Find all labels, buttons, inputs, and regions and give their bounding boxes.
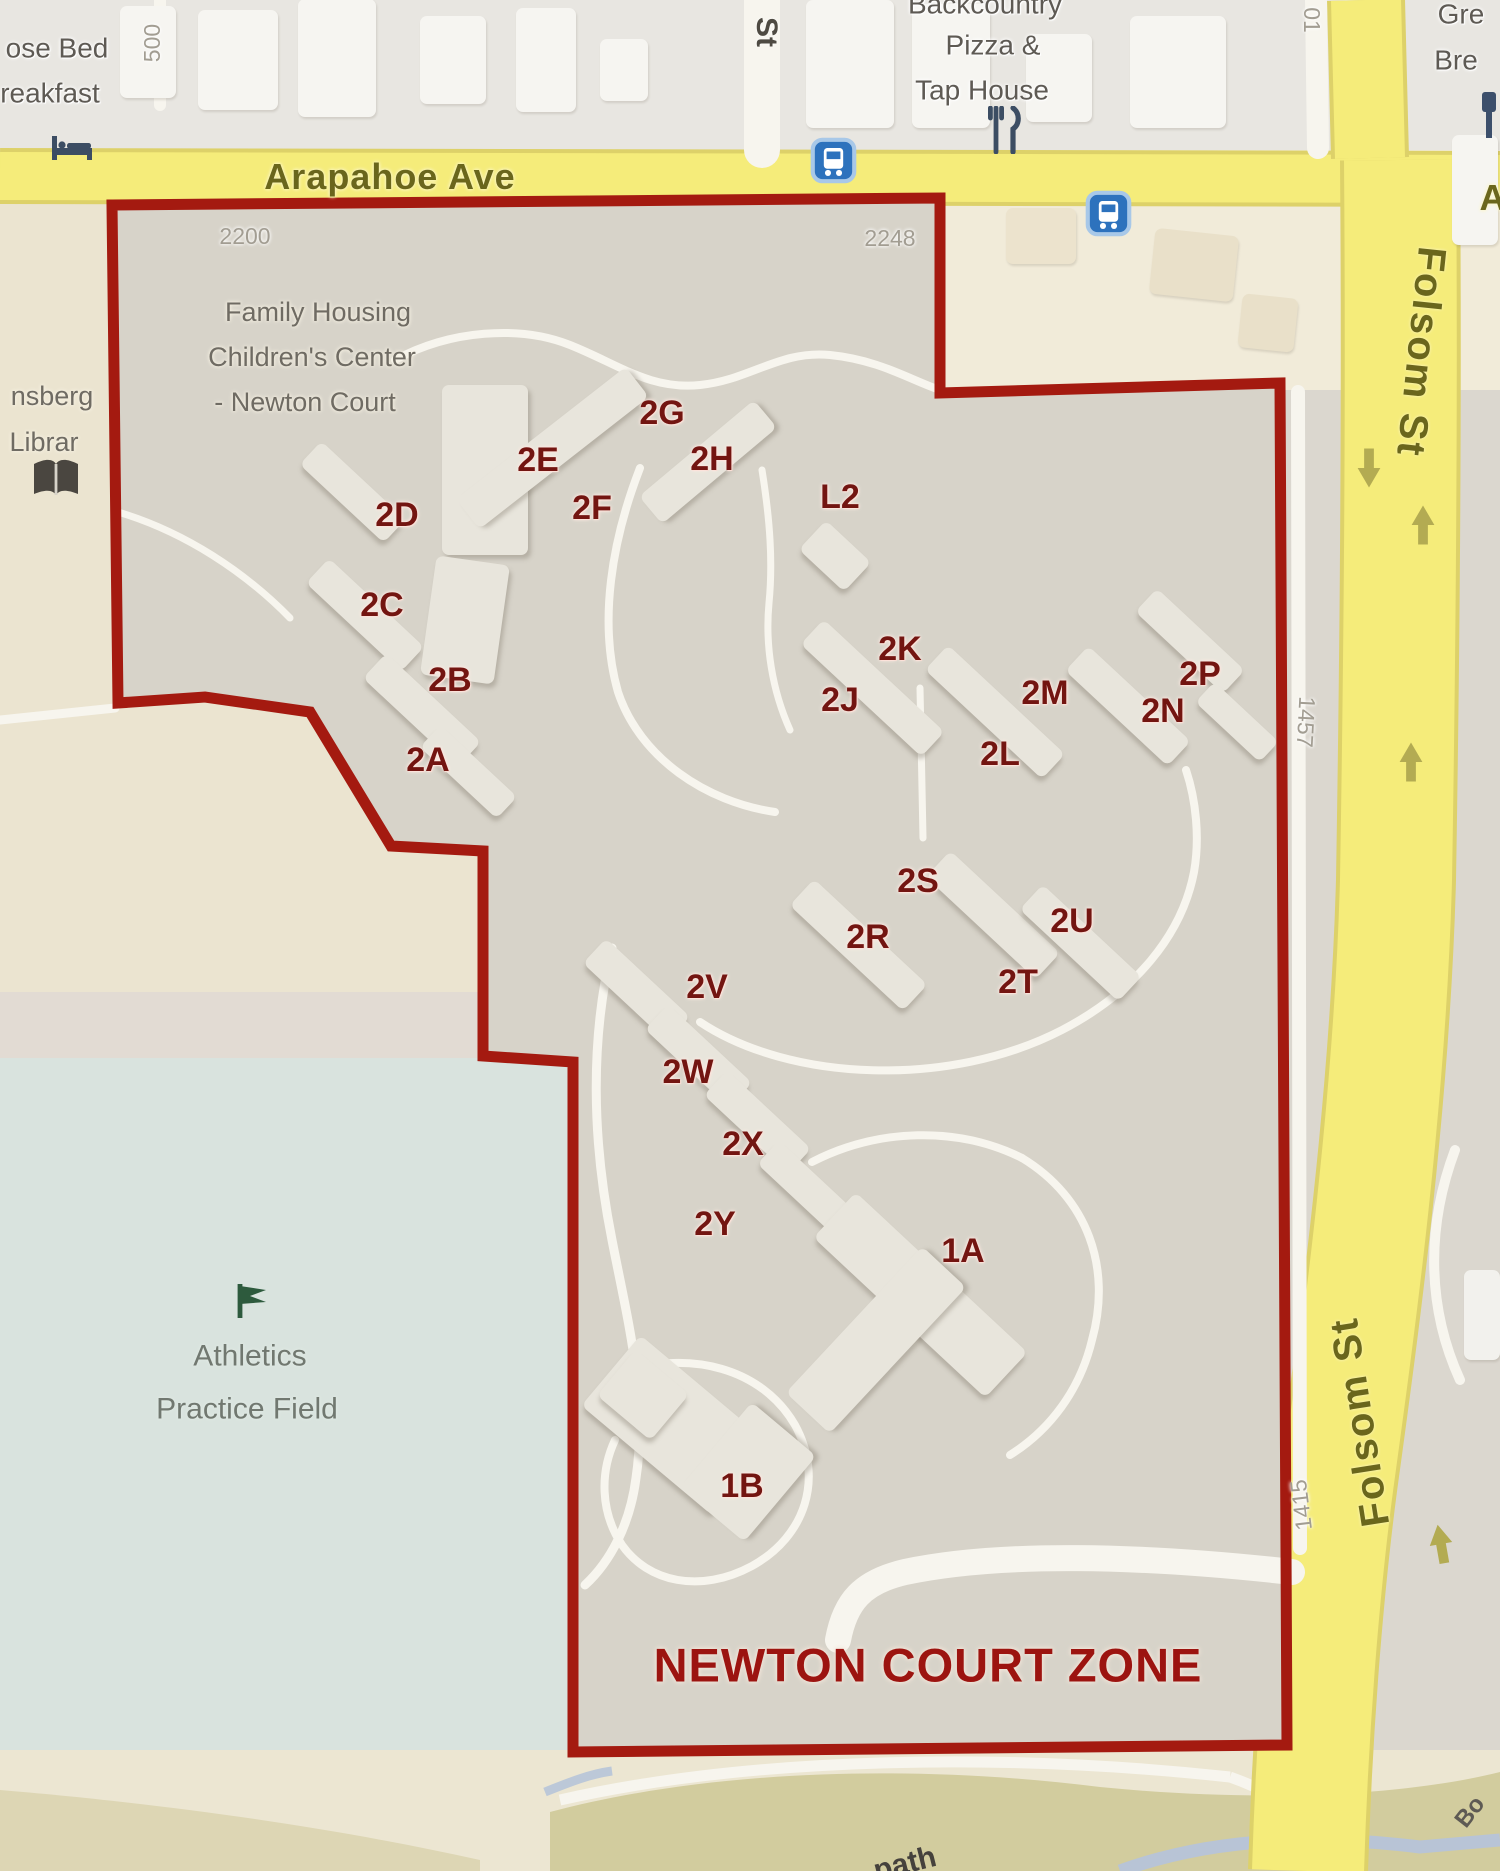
bus-stop-icon[interactable] xyxy=(810,137,857,184)
one-way-arrow-up-icon xyxy=(1410,505,1436,545)
building-footprint xyxy=(1195,682,1278,762)
map-canvas[interactable]: Arapahoe AveAFolsom StFolsom StSt2200224… xyxy=(0,0,1500,1871)
building-label-1A: 1A xyxy=(941,1234,984,1270)
poi-library-2: Librar xyxy=(9,428,78,456)
building-footprint xyxy=(799,520,872,592)
building-footprint xyxy=(456,367,649,529)
bus-stop-icon-2[interactable] xyxy=(1085,190,1132,237)
library-book-icon[interactable] xyxy=(30,456,82,502)
building-label-2J: 2J xyxy=(821,683,859,719)
one-way-arrow-down-icon xyxy=(1356,448,1382,488)
poi-library-1: nsberg xyxy=(11,382,94,410)
building-footprint xyxy=(1019,885,1141,1002)
building-label-2A: 2A xyxy=(406,743,449,779)
west-lot xyxy=(0,992,486,1062)
building-label-2F: 2F xyxy=(572,491,612,527)
building-label-2T: 2T xyxy=(998,965,1038,1001)
bed-icon[interactable] xyxy=(48,126,98,166)
street-label-arapahoe: Arapahoe Ave xyxy=(264,158,515,196)
building-label-2L: 2L xyxy=(980,737,1020,773)
building-footprint xyxy=(306,558,424,672)
poi-marker-icon[interactable] xyxy=(1480,92,1498,138)
building-footprint xyxy=(813,1192,1027,1398)
east-block xyxy=(1280,390,1500,1750)
building-footprint xyxy=(757,1140,856,1235)
field-flag-icon[interactable] xyxy=(232,1280,274,1322)
building-footprint xyxy=(442,385,528,555)
building-footprint xyxy=(786,1246,966,1433)
building-label-2Y: 2Y xyxy=(694,1207,736,1243)
athletics-field-area xyxy=(0,1058,574,1758)
building-footprint xyxy=(299,441,405,543)
building-label-2U: 2U xyxy=(1050,904,1093,940)
building-footprint xyxy=(581,1335,770,1515)
building-label-2K: 2K xyxy=(878,632,921,668)
building-label-2E: 2E xyxy=(517,443,559,479)
one-way-arrow-up-icon-2 xyxy=(1398,742,1424,782)
building-footprint xyxy=(419,725,516,819)
building-footprint xyxy=(789,879,927,1011)
building-footprint xyxy=(680,1402,816,1542)
building-label-2C: 2C xyxy=(360,588,403,624)
poi-path: path xyxy=(870,1841,939,1871)
building-label-2D: 2D xyxy=(375,498,418,534)
building-label-2N: 2N xyxy=(1141,694,1184,730)
building-footprint xyxy=(639,400,777,524)
building-label-2S: 2S xyxy=(897,864,939,900)
building-label-2P: 2P xyxy=(1179,657,1221,693)
building-footprint xyxy=(1065,646,1191,766)
building-label-2V: 2V xyxy=(686,970,728,1006)
address-2248: 2248 xyxy=(864,226,915,250)
building-footprint xyxy=(925,645,1065,779)
building-label-2B: 2B xyxy=(428,663,471,699)
building-label-L2: L2 xyxy=(820,480,860,516)
building-label-2H: 2H xyxy=(690,442,733,478)
poi-family-housing-2: Children's Center xyxy=(208,343,416,371)
building-label-2G: 2G xyxy=(639,396,684,432)
building-footprint xyxy=(800,619,944,756)
poi-family-housing-3: - Newton Court xyxy=(214,388,396,416)
north-blocks xyxy=(0,0,1500,152)
building-label-1B: 1B xyxy=(720,1469,763,1505)
building-footprint xyxy=(363,653,481,767)
northeast-block xyxy=(920,150,1500,392)
building-footprint xyxy=(703,1070,810,1173)
poi-family-housing-1: Family Housing xyxy=(225,298,411,326)
building-footprint xyxy=(597,1350,689,1441)
building-label-2R: 2R xyxy=(846,920,889,956)
building-footprint xyxy=(926,851,1060,980)
building-footprint xyxy=(1135,588,1245,693)
poi-bo: Bo xyxy=(1450,1792,1490,1833)
building-label-2M: 2M xyxy=(1021,676,1068,712)
zone-title: NEWTON COURT ZONE xyxy=(654,1640,1203,1689)
building-label-2X: 2X xyxy=(722,1127,764,1163)
building-footprint xyxy=(582,938,689,1041)
building-footprint xyxy=(420,555,510,684)
restaurant-icon[interactable] xyxy=(984,106,1024,154)
building-label-2W: 2W xyxy=(663,1055,714,1091)
building-footprint xyxy=(644,1004,751,1107)
address-2200: 2200 xyxy=(219,224,270,248)
